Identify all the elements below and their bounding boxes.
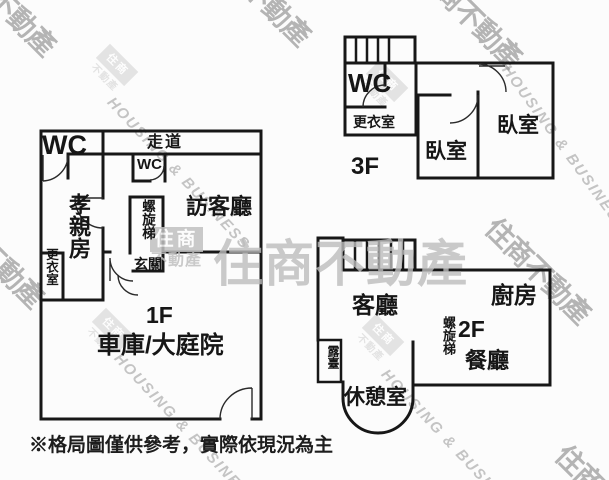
floor-plan-image: 住商不動產 住商不動產 住商不動產 住商不動產 住商不動產 住商不動產 HOUS… xyxy=(0,0,609,480)
room-label-1f-wc-small: WC xyxy=(137,157,162,173)
room-label-3f-bedroom-left: 臥室 xyxy=(425,141,467,164)
room-label-1f-guest-living: 訪客廳 xyxy=(186,195,252,219)
room-label-2f-living: 客廳 xyxy=(352,293,398,318)
room-label-3f-bedroom-right: 臥室 xyxy=(497,115,539,138)
room-label-1f-foyer: 玄關 xyxy=(134,257,162,272)
room-label-1f-garage: 車庫/大庭院 xyxy=(97,333,224,359)
room-label-2f-kitchen: 廚房 xyxy=(491,283,537,308)
labels-layer: WC 走道 WC 孝親房 更衣室 螺旋梯 訪客廳 玄關 1F 車庫/大庭院 客廳… xyxy=(0,0,609,480)
room-label-1f-filial-room: 孝親房 xyxy=(65,193,91,259)
room-label-2f-spiral-stair: 螺旋梯 xyxy=(440,316,457,355)
disclaimer-text: ※格局圖僅供參考，實際依現況為主 xyxy=(29,430,333,457)
room-label-1f-spiral-stair: 螺旋梯 xyxy=(139,199,156,240)
room-label-1f-closet: 更衣室 xyxy=(43,248,58,286)
floor-label-3f: 3F xyxy=(351,154,379,180)
room-label-1f-wc: WC xyxy=(42,131,87,160)
floor-label-1f: 1F xyxy=(146,303,173,328)
room-label-2f-dining: 餐廳 xyxy=(465,349,509,373)
floor-label-2f: 2F xyxy=(458,317,485,342)
room-label-3f-wc: WC xyxy=(348,69,391,97)
room-label-3f-closet: 更衣室 xyxy=(353,115,395,130)
room-label-2f-terrace: 露臺 xyxy=(323,345,342,369)
room-label-2f-lounge: 休憩室 xyxy=(344,387,407,410)
room-label-1f-corridor: 走道 xyxy=(147,134,183,151)
